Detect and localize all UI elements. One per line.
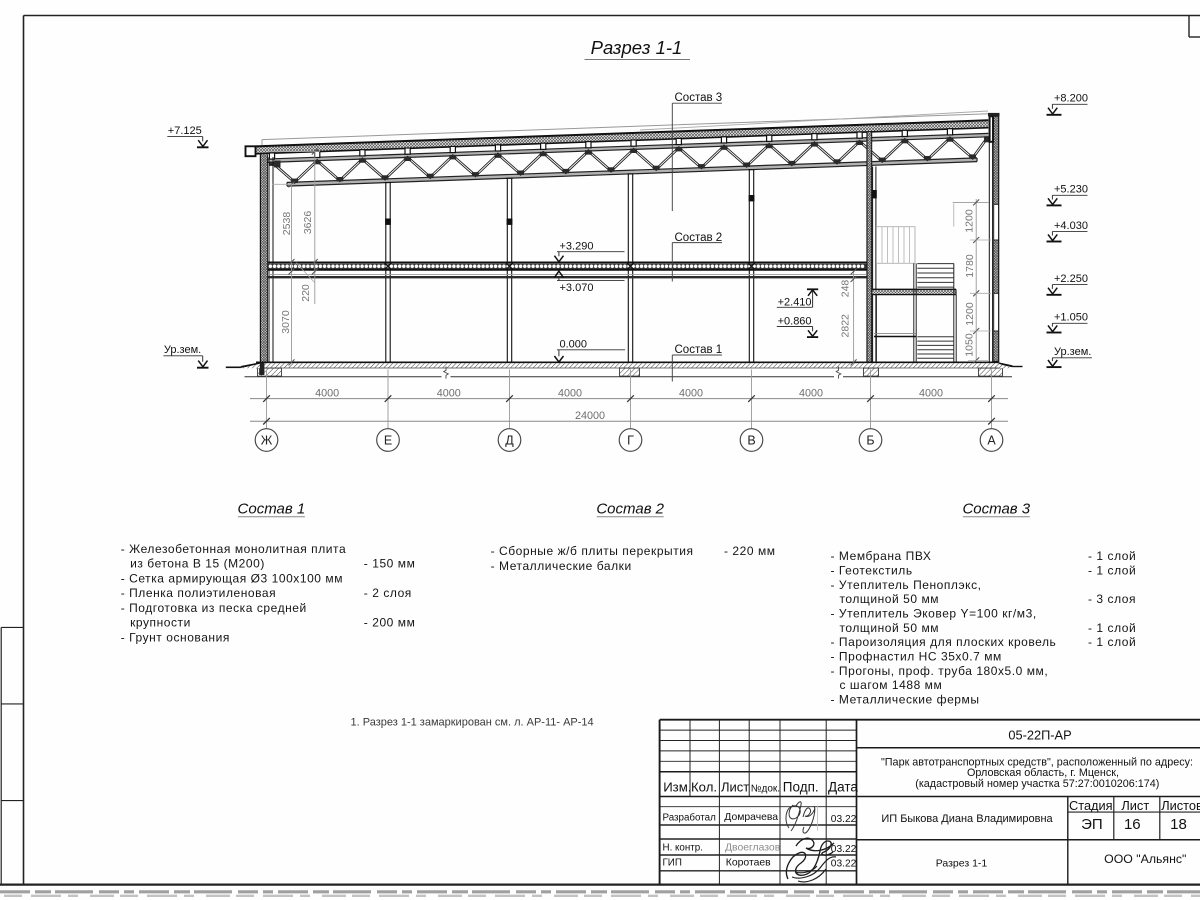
svg-text:ЭП: ЭП [1081,816,1103,833]
svg-text:Подп.: Подп. [783,780,819,795]
svg-text:+3.070: +3.070 [560,282,594,294]
svg-text:2538: 2538 [281,212,293,236]
svg-text:- Железобетонная монолитная п: - Железобетонная монолитная плита [121,542,346,556]
svg-text:- 2 слоя: - 2 слоя [364,586,412,600]
svg-text:Состав 3: Состав 3 [962,501,1030,518]
svg-text:+5.230: +5.230 [1054,184,1088,196]
svg-text:1. Разрез 1-1 замаркирован см.: 1. Разрез 1-1 замаркирован см. л. АР-11-… [351,717,594,729]
svg-text:Состав 1: Состав 1 [675,344,723,356]
svg-text:3626: 3626 [302,211,314,235]
svg-text:- Прогоны, проф. труба 180х5.0: - Прогоны, проф. труба 180х5.0 мм, [831,664,1049,678]
svg-text:0.000: 0.000 [560,338,588,350]
svg-text:4000: 4000 [679,387,703,399]
svg-text:1200: 1200 [964,209,976,233]
svg-text:1200: 1200 [964,302,976,326]
svg-text:Домрачева: Домрачева [724,812,778,823]
svg-text:03.22: 03.22 [831,844,857,855]
svg-text:Листов: Листов [1161,798,1200,813]
svg-text:220: 220 [300,284,312,302]
svg-text:толщиной 50 мм: толщиной 50 мм [840,621,940,635]
svg-text:из бетона В 15 (М200): из бетона В 15 (М200) [130,557,265,571]
svg-text:- Утеплитель Эковер Y=100 кг/м: - Утеплитель Эковер Y=100 кг/м3, [831,607,1037,621]
svg-text:В: В [747,433,755,447]
svg-text:с шагом 1488 мм: с шагом 1488 мм [840,678,943,692]
svg-text:ООО "Альянс": ООО "Альянс" [1104,852,1186,866]
svg-text:Разрез 1-1: Разрез 1-1 [936,858,988,870]
svg-text:Разработал: Разработал [663,812,717,823]
svg-text:Состав 1: Состав 1 [238,501,306,518]
svg-text:- 3 слоя: - 3 слоя [1088,592,1136,606]
svg-text:1780: 1780 [964,254,976,278]
svg-text:Ур.зем.: Ур.зем. [1054,346,1091,358]
svg-text:Состав 3: Состав 3 [675,92,723,104]
svg-text:16: 16 [1124,816,1141,833]
svg-text:- Пленка полиэтиленовая: - Пленка полиэтиленовая [121,586,277,600]
svg-text:03.22: 03.22 [831,859,857,870]
svg-text:+0.860: +0.860 [778,316,812,328]
svg-text:Кол.: Кол. [691,780,717,795]
svg-text:+2.410: +2.410 [778,297,812,309]
svg-text:- Металлические фермы: - Металлические фермы [831,692,980,706]
svg-text:Н. контр.: Н. контр. [663,842,703,853]
svg-text:толщиной 50 мм: толщиной 50 мм [840,592,940,606]
svg-text:- Грунт основания: - Грунт основания [121,630,230,644]
svg-text:№док.: №док. [751,783,780,794]
svg-text:Разрез 1-1: Разрез 1-1 [591,37,683,58]
svg-text:- 1 слой: - 1 слой [1088,549,1136,563]
svg-text:+3.290: +3.290 [560,241,594,253]
svg-text:05-22П-АР: 05-22П-АР [1008,728,1071,743]
svg-text:Лист: Лист [721,780,749,795]
svg-text:ГИП: ГИП [663,857,682,868]
svg-text:- Сетка армирующая Ø3 100х100: - Сетка армирующая Ø3 100х100 мм [121,571,343,585]
svg-text:24000: 24000 [575,410,605,422]
svg-text:Стадия: Стадия [1069,798,1113,813]
svg-text:+4.030: +4.030 [1054,220,1088,232]
svg-text:- Подготовка из песка средней: - Подготовка из песка средней [121,601,307,615]
svg-text:ИП Быкова Диана Владимировна: ИП Быкова Диана Владимировна [881,813,1053,825]
svg-text:Б: Б [866,433,874,447]
svg-text:Дата: Дата [828,780,858,795]
svg-text:- 150 мм: - 150 мм [364,557,416,571]
svg-text:крупности: крупности [130,616,191,630]
svg-text:- Геотекстиль: - Геотекстиль [831,564,913,578]
svg-text:- Металлические балки: - Металлические балки [491,559,632,573]
svg-text:4000: 4000 [919,387,943,399]
svg-text:+1.050: +1.050 [1054,312,1088,324]
svg-text:4000: 4000 [558,387,582,399]
svg-text:18: 18 [1170,816,1187,833]
svg-text:- 1 слой: - 1 слой [1088,635,1136,649]
svg-text:- Профнастил НС 35х0.7 мм: - Профнастил НС 35х0.7 мм [831,649,1002,663]
svg-text:4000: 4000 [799,387,823,399]
svg-text:4000: 4000 [437,387,461,399]
svg-text:Д: Д [505,433,514,447]
svg-text:+2.250: +2.250 [1054,273,1088,285]
svg-text:Лист: Лист [1121,798,1149,813]
svg-text:- Мембрана ПВХ: - Мембрана ПВХ [831,549,932,563]
svg-text:- 1 слой: - 1 слой [1088,564,1136,578]
svg-text:03.22: 03.22 [831,814,857,825]
svg-text:Ж: Ж [261,433,273,447]
svg-text:А: А [987,433,996,447]
svg-text:+8.200: +8.200 [1054,93,1088,105]
svg-text:Двоеглазов: Двоеглазов [725,842,781,853]
svg-text:- 220 мм: - 220 мм [724,544,776,558]
svg-text:- Сборные ж/б плиты перекрытия: - Сборные ж/б плиты перекрытия [491,544,694,558]
svg-text:2822: 2822 [839,314,851,338]
svg-text:248: 248 [839,280,851,298]
svg-text:Е: Е [384,433,392,447]
svg-text:- Пароизоляция для плоских кро: - Пароизоляция для плоских кровель [831,635,1057,649]
svg-text:Состав 2: Состав 2 [596,501,664,518]
svg-text:- Утеплитель Пеноплэкс,: - Утеплитель Пеноплэкс, [831,578,982,592]
svg-text:3070: 3070 [280,310,292,334]
svg-text:4000: 4000 [315,387,339,399]
svg-text:(кадастровый номер участка 57:: (кадастровый номер участка 57:27:0010206… [915,778,1159,790]
svg-text:Коротаев: Коротаев [726,857,771,868]
svg-text:1050: 1050 [964,333,976,357]
svg-text:+7.125: +7.125 [168,125,202,137]
svg-text:- 200 мм: - 200 мм [364,616,416,630]
svg-text:- 1 слой: - 1 слой [1088,621,1136,635]
svg-text:Изм.: Изм. [663,780,691,795]
svg-text:Состав 2: Состав 2 [675,232,723,244]
svg-text:Ур.зем.: Ур.зем. [164,344,201,356]
svg-text:Г: Г [627,433,634,447]
